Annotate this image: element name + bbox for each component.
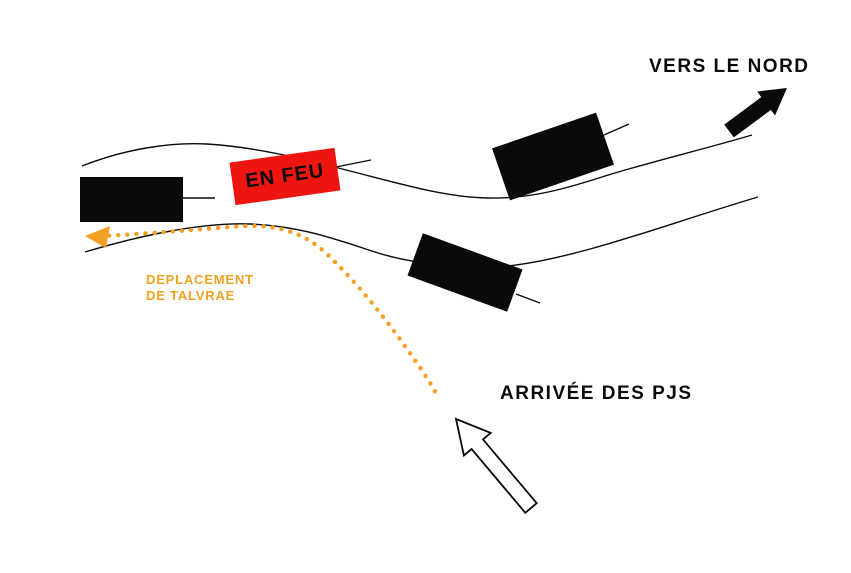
north-arrow-icon: [724, 88, 787, 137]
west-building: [80, 177, 183, 222]
talvrae-movement-label-line1: DEPLACEMENT: [146, 272, 254, 288]
burning-building-label: EN FEU: [244, 160, 326, 194]
pcs-arrival-label: ARRIVÉE DES PJS: [500, 383, 693, 405]
movement-trail-arrowhead-icon: [85, 226, 110, 248]
movement-trail-dotted-path: [100, 226, 438, 397]
driveway-northeast-building: [604, 124, 629, 135]
talvrae-movement-label: DEPLACEMENT DE TALVRAE: [146, 272, 254, 304]
driveway-middle-building: [516, 294, 540, 303]
scene-map: EN FEU VERS LE NORD DEPLACEMENT DE TALVR…: [0, 0, 851, 573]
arrival-arrow-icon: [456, 419, 537, 513]
map-linework: [0, 0, 851, 573]
talvrae-movement-label-line2: DE TALVRAE: [146, 288, 254, 304]
north-direction-label: VERS LE NORD: [649, 56, 810, 78]
